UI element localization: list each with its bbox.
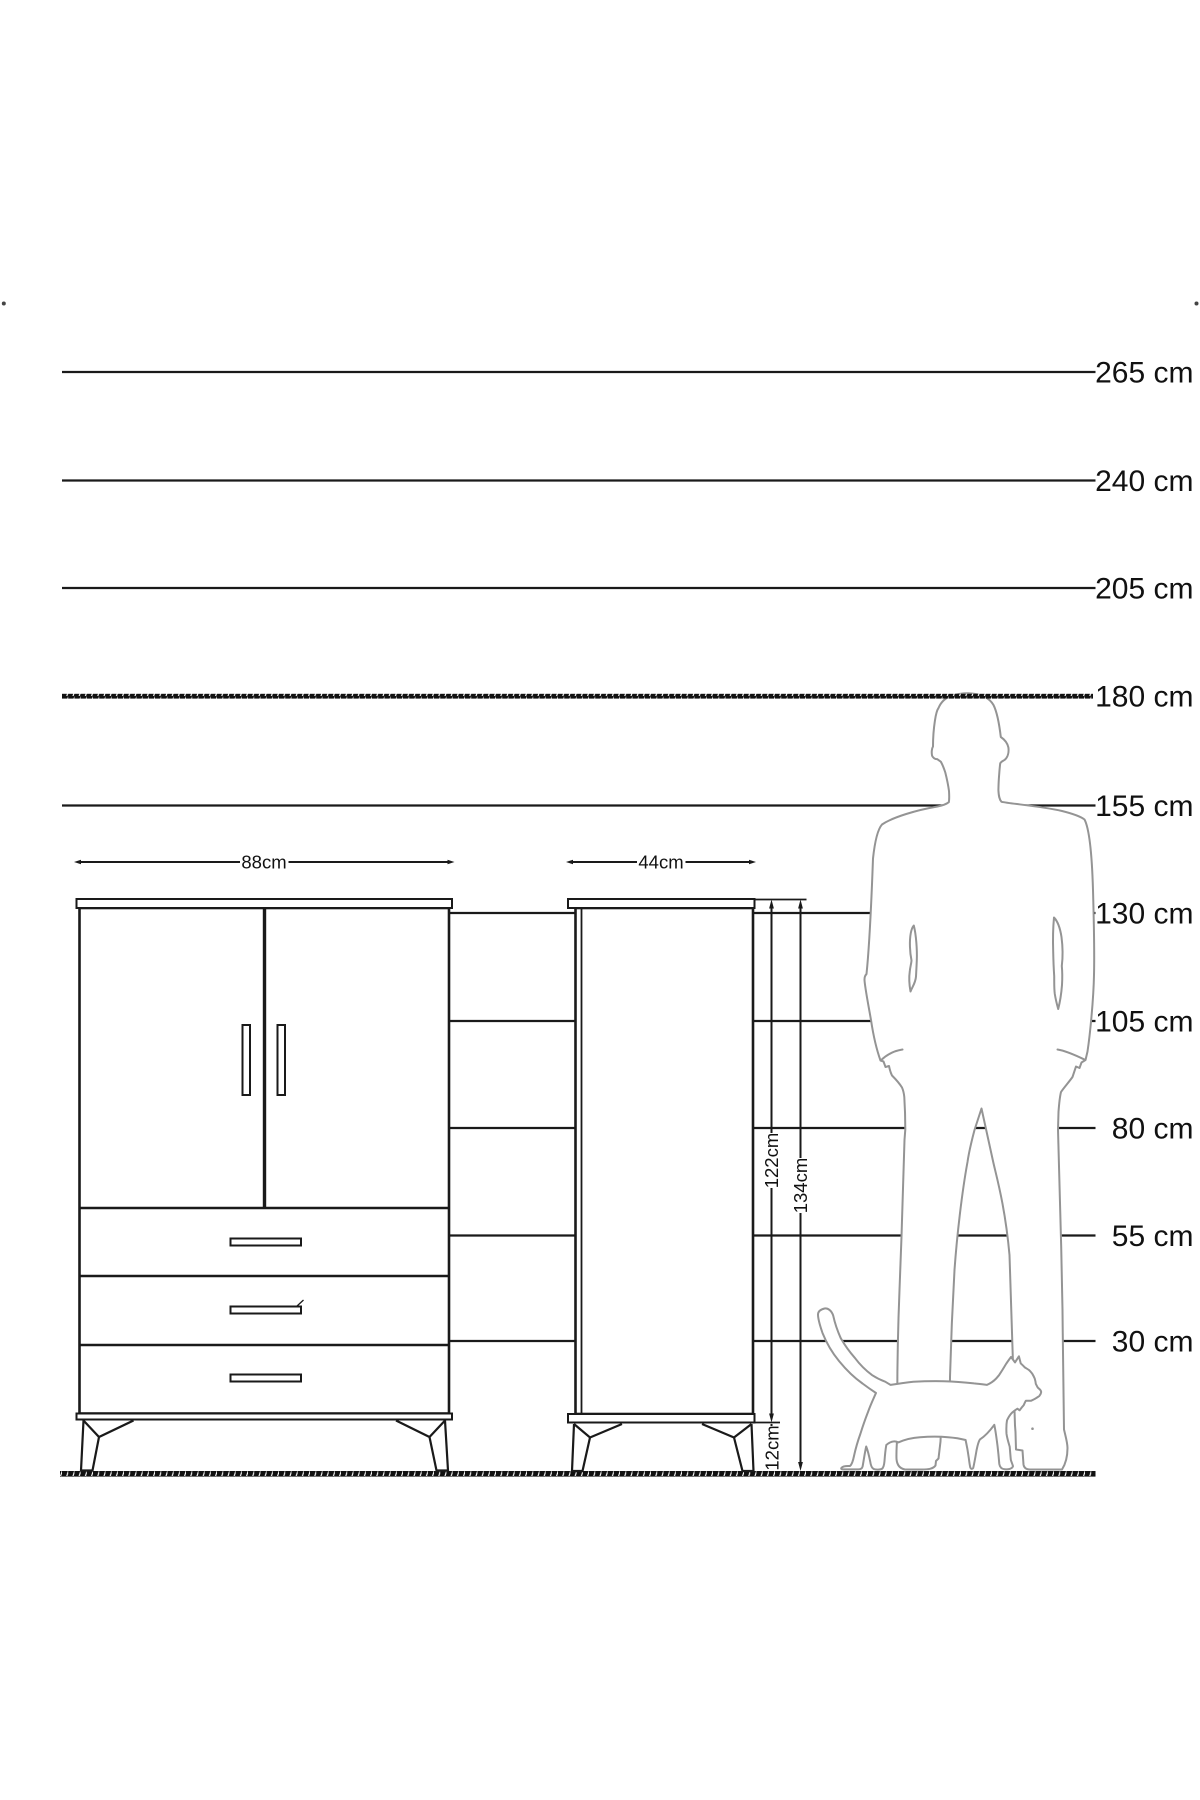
svg-text:134cm: 134cm bbox=[790, 1158, 811, 1214]
svg-text:80 cm: 80 cm bbox=[1112, 1113, 1194, 1146]
svg-text:88cm: 88cm bbox=[241, 851, 286, 872]
svg-text:205 cm: 205 cm bbox=[1095, 573, 1193, 606]
svg-text:12cm: 12cm bbox=[762, 1425, 783, 1470]
svg-text:240 cm: 240 cm bbox=[1095, 465, 1193, 498]
svg-text:30 cm: 30 cm bbox=[1112, 1326, 1194, 1359]
svg-text:265 cm: 265 cm bbox=[1095, 357, 1193, 390]
svg-text:105 cm: 105 cm bbox=[1095, 1006, 1193, 1039]
svg-text:180 cm: 180 cm bbox=[1095, 681, 1193, 714]
svg-text:122cm: 122cm bbox=[761, 1133, 782, 1189]
svg-text:130 cm: 130 cm bbox=[1095, 898, 1193, 931]
svg-text:44cm: 44cm bbox=[638, 851, 683, 872]
svg-text:55 cm: 55 cm bbox=[1112, 1220, 1194, 1253]
svg-text:155 cm: 155 cm bbox=[1095, 790, 1193, 823]
